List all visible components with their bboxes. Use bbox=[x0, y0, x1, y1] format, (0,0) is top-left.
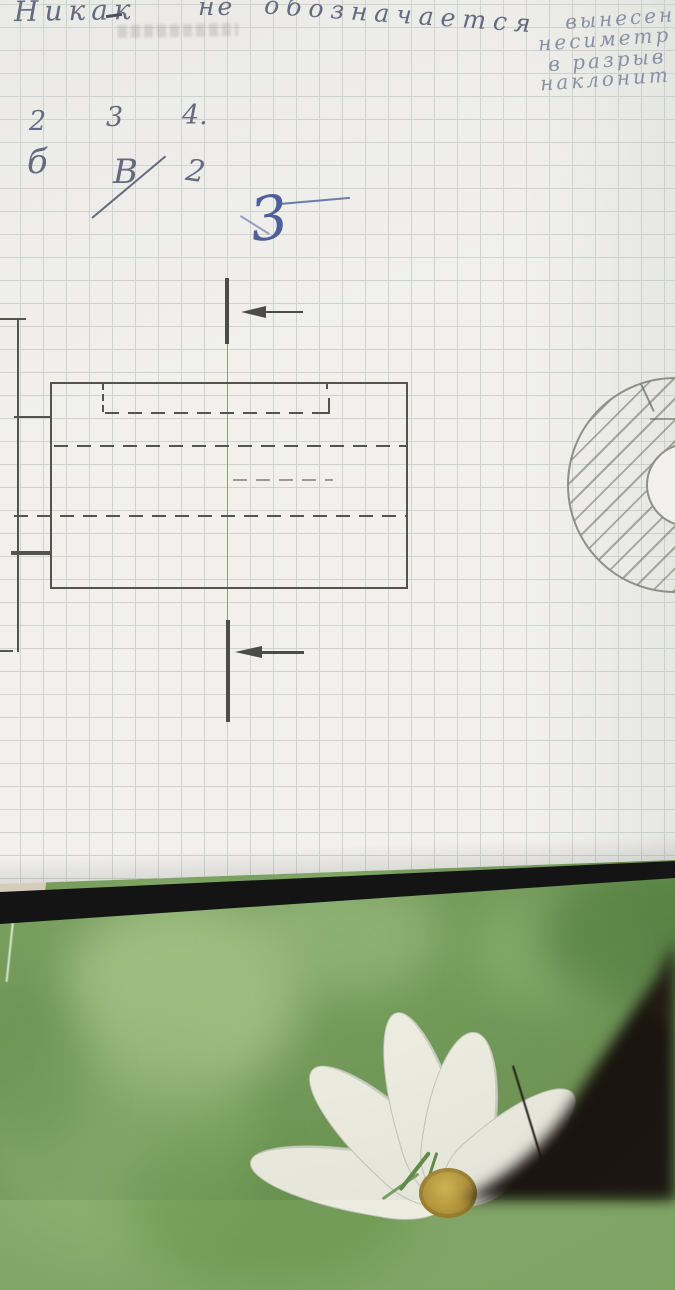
answer-number: 2 bbox=[29, 106, 46, 137]
hidden-line-slot bbox=[105, 412, 318, 414]
handwritten-note-word: обозначается bbox=[263, 0, 538, 39]
left-part-connector bbox=[14, 416, 52, 419]
hidden-line-axis bbox=[233, 479, 333, 481]
left-part-top-line bbox=[0, 318, 26, 321]
section-plane-mark-bottom bbox=[226, 620, 230, 722]
section-label: 3 bbox=[245, 182, 293, 257]
left-part-edge bbox=[17, 318, 20, 652]
answer-number: 4. bbox=[182, 100, 208, 131]
handwritten-note-word: не bbox=[198, 0, 235, 21]
left-part-thick-line bbox=[11, 551, 52, 555]
slot-tick bbox=[326, 383, 328, 389]
answer-letter: б bbox=[27, 142, 48, 182]
answer-letter-crossed: В bbox=[113, 152, 138, 192]
show-through-smudge bbox=[118, 23, 238, 38]
left-part-bottom-line bbox=[0, 650, 13, 652]
hatched-section-circle bbox=[567, 377, 675, 593]
section-plane-mark-top bbox=[225, 278, 229, 344]
circle-bore-hole bbox=[646, 443, 675, 527]
slot-hook-foot bbox=[318, 412, 330, 414]
circle-chord-line bbox=[639, 381, 655, 412]
view-direction-arrow-tail bbox=[263, 311, 303, 314]
view-direction-arrow-bottom bbox=[235, 646, 262, 658]
answer-number: 3 bbox=[106, 102, 123, 133]
view-direction-arrow-tail bbox=[260, 651, 304, 654]
answer-number: 2 bbox=[184, 153, 208, 190]
hidden-line-upper bbox=[54, 445, 406, 447]
slot-tick bbox=[102, 383, 104, 390]
circle-keyway-line bbox=[650, 418, 675, 420]
pen-flourish bbox=[278, 197, 350, 205]
hidden-line-lower bbox=[14, 515, 406, 517]
hidden-line-vertical bbox=[102, 394, 104, 413]
